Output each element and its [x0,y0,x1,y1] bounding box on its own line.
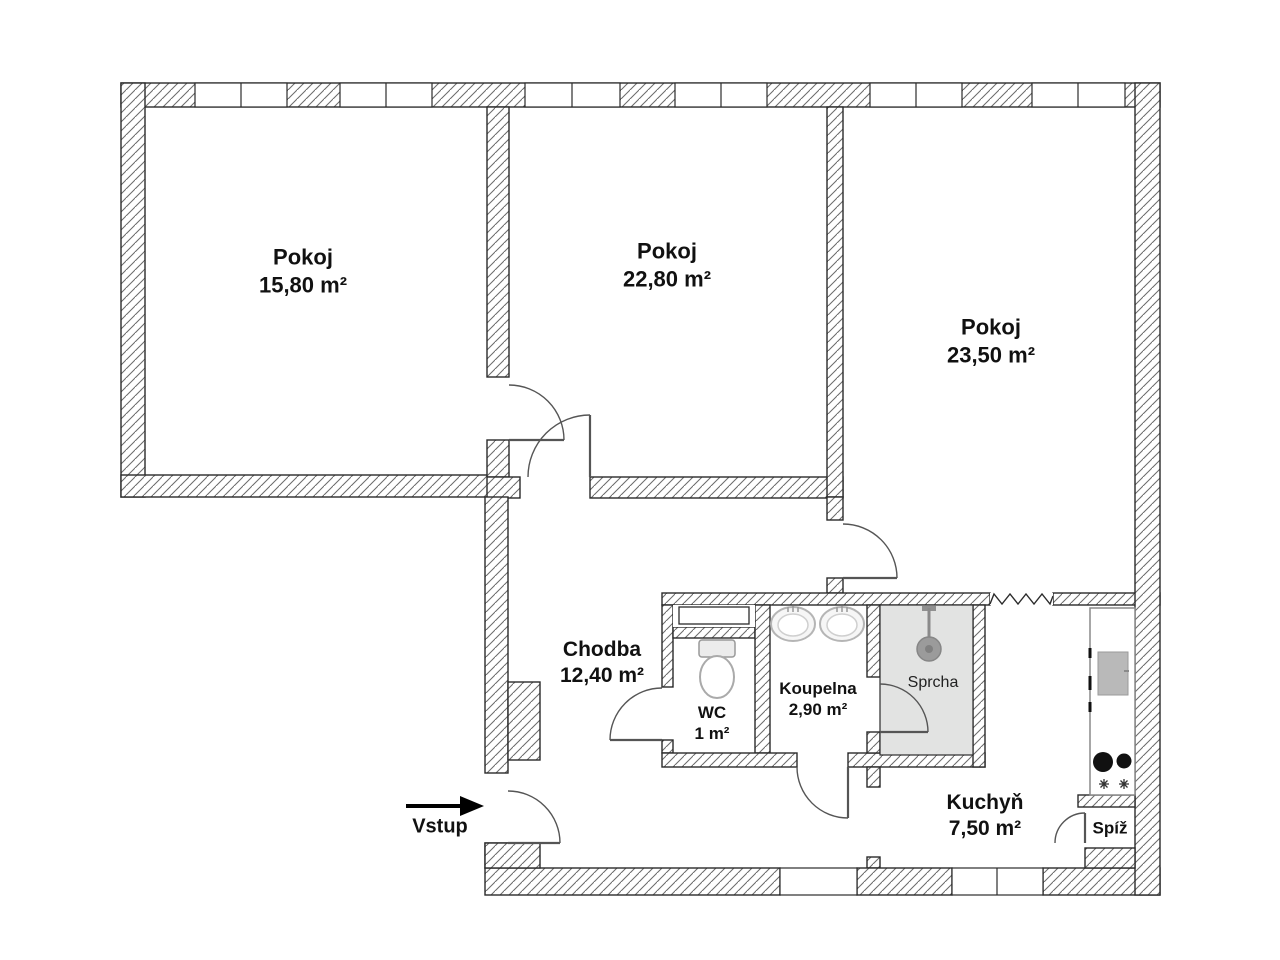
room-label-pokoj-2: Pokoj 22,80 m² [623,238,711,293]
sink-icon [820,606,864,641]
stove-icon [1098,652,1128,695]
window [952,868,1043,895]
room-label-wc: WC 1 m² [695,702,730,745]
room-label-pokoj-1: Pokoj 15,80 m² [259,244,347,299]
door-arc [528,415,590,477]
door-arc [509,385,564,440]
window [870,83,962,107]
shaft [673,605,755,627]
window [675,83,767,107]
sink-icon [771,606,815,641]
door-arc [843,524,897,578]
window [780,868,857,895]
room-label-pokoj-3: Pokoj 23,50 m² [947,314,1035,369]
entrance-arrow-icon [406,796,484,816]
floorplan-page: Pokoj 15,80 m² Pokoj 22,80 m² Pokoj 23,5… [0,0,1280,960]
door-arc [508,791,560,843]
window [195,83,287,107]
room-label-chodba: Chodba 12,40 m² [560,637,644,690]
walls [121,83,1160,895]
room-label-kuchyn: Kuchyň 7,50 m² [946,790,1023,843]
door-arc [610,688,662,740]
toilet-icon [699,640,735,698]
window [525,83,620,107]
room-label-sprcha: Sprcha [908,673,959,693]
room-label-koupelna: Koupelna 2,90 m² [779,678,856,721]
door-arc [1055,813,1085,843]
door-arc [797,767,848,818]
window [340,83,432,107]
entrance-label: Vstup [412,815,468,840]
room-label-spiz: Spíž [1093,817,1128,838]
floorplan-drawing [0,0,1280,960]
radiator-zigzag-icon [990,593,1053,605]
window [1032,83,1125,107]
